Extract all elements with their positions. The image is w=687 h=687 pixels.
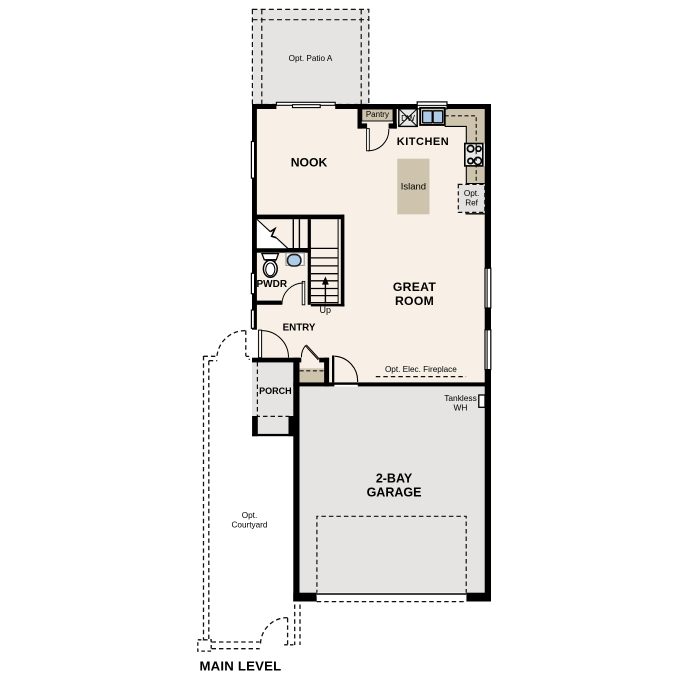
svg-text:PWDR: PWDR: [257, 279, 288, 290]
svg-text:Tankless: Tankless: [444, 393, 477, 403]
svg-text:Island: Island: [401, 182, 426, 193]
svg-text:2-BAY: 2-BAY: [376, 472, 413, 486]
svg-text:Opt. Patio A: Opt. Patio A: [289, 54, 333, 63]
svg-text:WH: WH: [454, 403, 468, 413]
svg-text:Up: Up: [320, 305, 332, 315]
svg-text:MAIN LEVEL: MAIN LEVEL: [200, 659, 282, 674]
svg-text:Opt.: Opt.: [464, 189, 479, 198]
svg-text:ENTRY: ENTRY: [283, 323, 316, 334]
svg-text:Opt.: Opt.: [242, 511, 257, 520]
svg-text:Ref: Ref: [465, 199, 478, 208]
svg-text:GARAGE: GARAGE: [367, 486, 422, 500]
svg-text:GREAT: GREAT: [393, 280, 437, 294]
svg-text:KITCHEN: KITCHEN: [397, 136, 449, 148]
svg-text:Courtyard: Courtyard: [232, 521, 268, 530]
svg-text:Opt. Elec. Fireplace: Opt. Elec. Fireplace: [385, 365, 457, 374]
svg-text:PORCH: PORCH: [259, 386, 292, 396]
svg-text:ROOM: ROOM: [395, 294, 434, 308]
svg-text:Pantry: Pantry: [366, 110, 389, 119]
svg-text:DW: DW: [401, 114, 415, 123]
svg-text:NOOK: NOOK: [291, 155, 328, 169]
